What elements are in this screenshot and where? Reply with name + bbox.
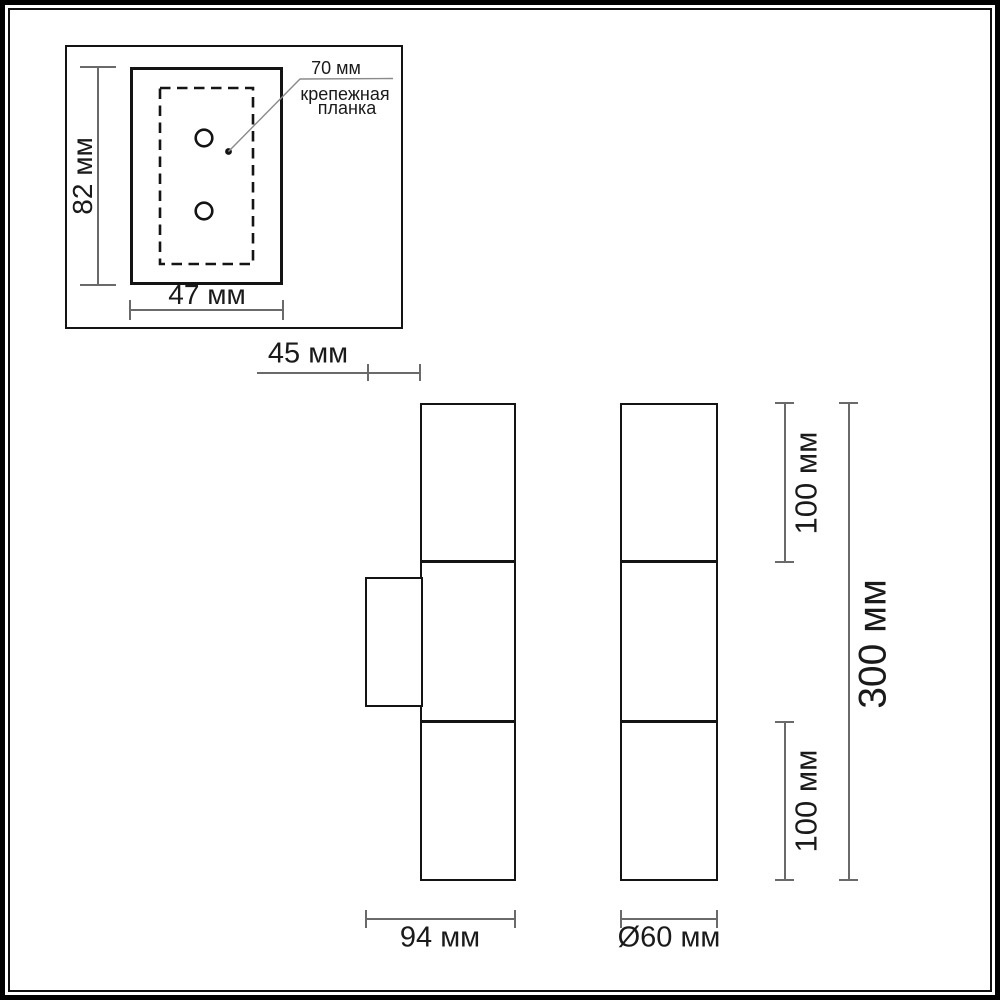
dim-94-cap-left: [365, 910, 367, 928]
dim-82-cap-bottom: [80, 284, 116, 286]
dim-94-line: [366, 918, 516, 920]
dim-47-cap-left: [129, 300, 131, 320]
dim-300-line: [848, 403, 850, 881]
front-view-body: [620, 403, 718, 881]
front-view-divider-bottom: [622, 720, 716, 723]
diameter-label: Ø60 мм: [618, 924, 721, 953]
dim-94-cap-right: [514, 910, 516, 928]
dim-100-bottom-cap-b: [775, 879, 794, 881]
screw-hole-top-icon: [196, 130, 213, 147]
screw-hole-bottom-icon: [196, 203, 213, 220]
segment-top-label: 100 мм: [791, 432, 822, 535]
dim-100-top-cap-a: [775, 402, 794, 404]
dim-100-bottom-line: [784, 722, 786, 881]
dim-82-cap-top: [80, 66, 116, 68]
hole-spacing-label: 70 мм: [311, 59, 361, 77]
dim-100-top-cap-b: [775, 561, 794, 563]
body-depth-label: 94 мм: [400, 924, 480, 953]
segment-bottom-label: 100 мм: [791, 750, 822, 853]
dim-300-cap-bottom: [839, 879, 858, 881]
plate-width-label: 47 мм: [168, 281, 245, 309]
total-height-label: 300 мм: [854, 579, 893, 709]
wall-bracket: [365, 577, 423, 707]
lamp-technical-drawing: 70 мм крепежная планка 82 мм 47 мм 45 мм…: [0, 0, 1000, 1000]
mounting-strap-dashed-outline: [160, 88, 253, 264]
dim-100-bottom-cap-a: [775, 721, 794, 723]
plate-height-label: 82 мм: [69, 137, 97, 214]
dim-45-line: [257, 372, 420, 374]
side-view-body: [420, 403, 516, 881]
bracket-depth-label: 45 мм: [268, 340, 348, 369]
dim-100-top-line: [784, 403, 786, 563]
dim-45-cap-right: [419, 364, 421, 381]
dim-300-cap-top: [839, 402, 858, 404]
dim-47-cap-right: [282, 300, 284, 320]
front-view-divider-top: [622, 560, 716, 563]
dim-60-line: [621, 918, 718, 920]
side-view-divider-top: [422, 560, 514, 563]
callout-line2: планка: [318, 99, 376, 117]
side-view-divider-bottom: [422, 720, 514, 723]
dim-45-cap-left: [367, 364, 369, 381]
